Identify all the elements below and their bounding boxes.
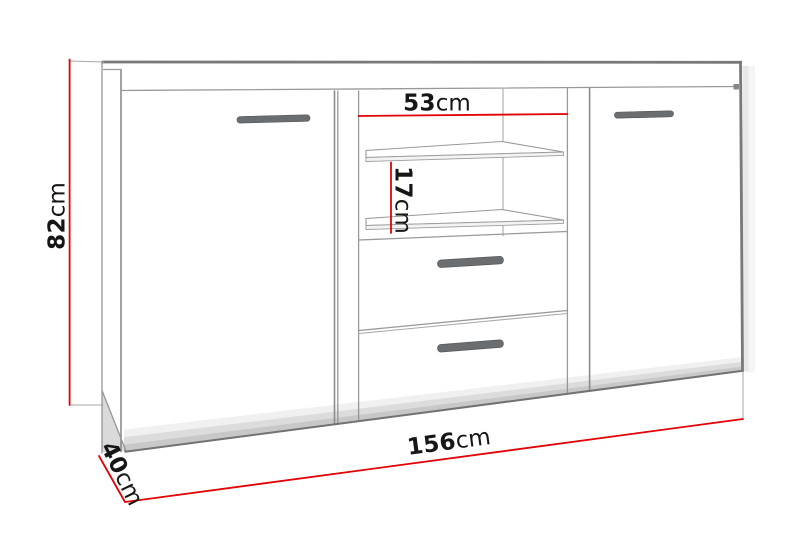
shelf-spacing-value: 17 [390,166,416,199]
left-door-handle [237,115,310,123]
inner-width-value: 53 [403,91,436,117]
drawer-1-handle [437,256,503,268]
shelf-spacing-unit: cm [390,199,416,234]
height-dimension-label: 82cm [47,182,70,250]
height-value: 82 [45,217,71,250]
drawer-gap-upper-line [359,311,567,331]
right-door-handle [614,111,673,119]
shelf-1 [366,142,564,162]
drawer-section [359,232,567,334]
dimension-diagram: 82cm 53cm 17cm 156cm 40cm [0,0,800,533]
cabinet-body [102,63,737,454]
right-edge [741,62,743,370]
right-shadow [743,66,756,373]
inner-width-unit: cm [436,91,471,117]
height-extension-top [70,61,104,62]
top-panel-corner-nub [734,84,740,90]
drawer-gap-lower-line [359,314,567,334]
inner-width-dimension-label: 53cm [403,93,471,116]
shelf-spacing-dimension-label: 17cm [391,166,414,234]
drawer-2-handle [437,340,503,353]
width-unit: cm [454,424,492,454]
height-unit: cm [45,182,71,217]
